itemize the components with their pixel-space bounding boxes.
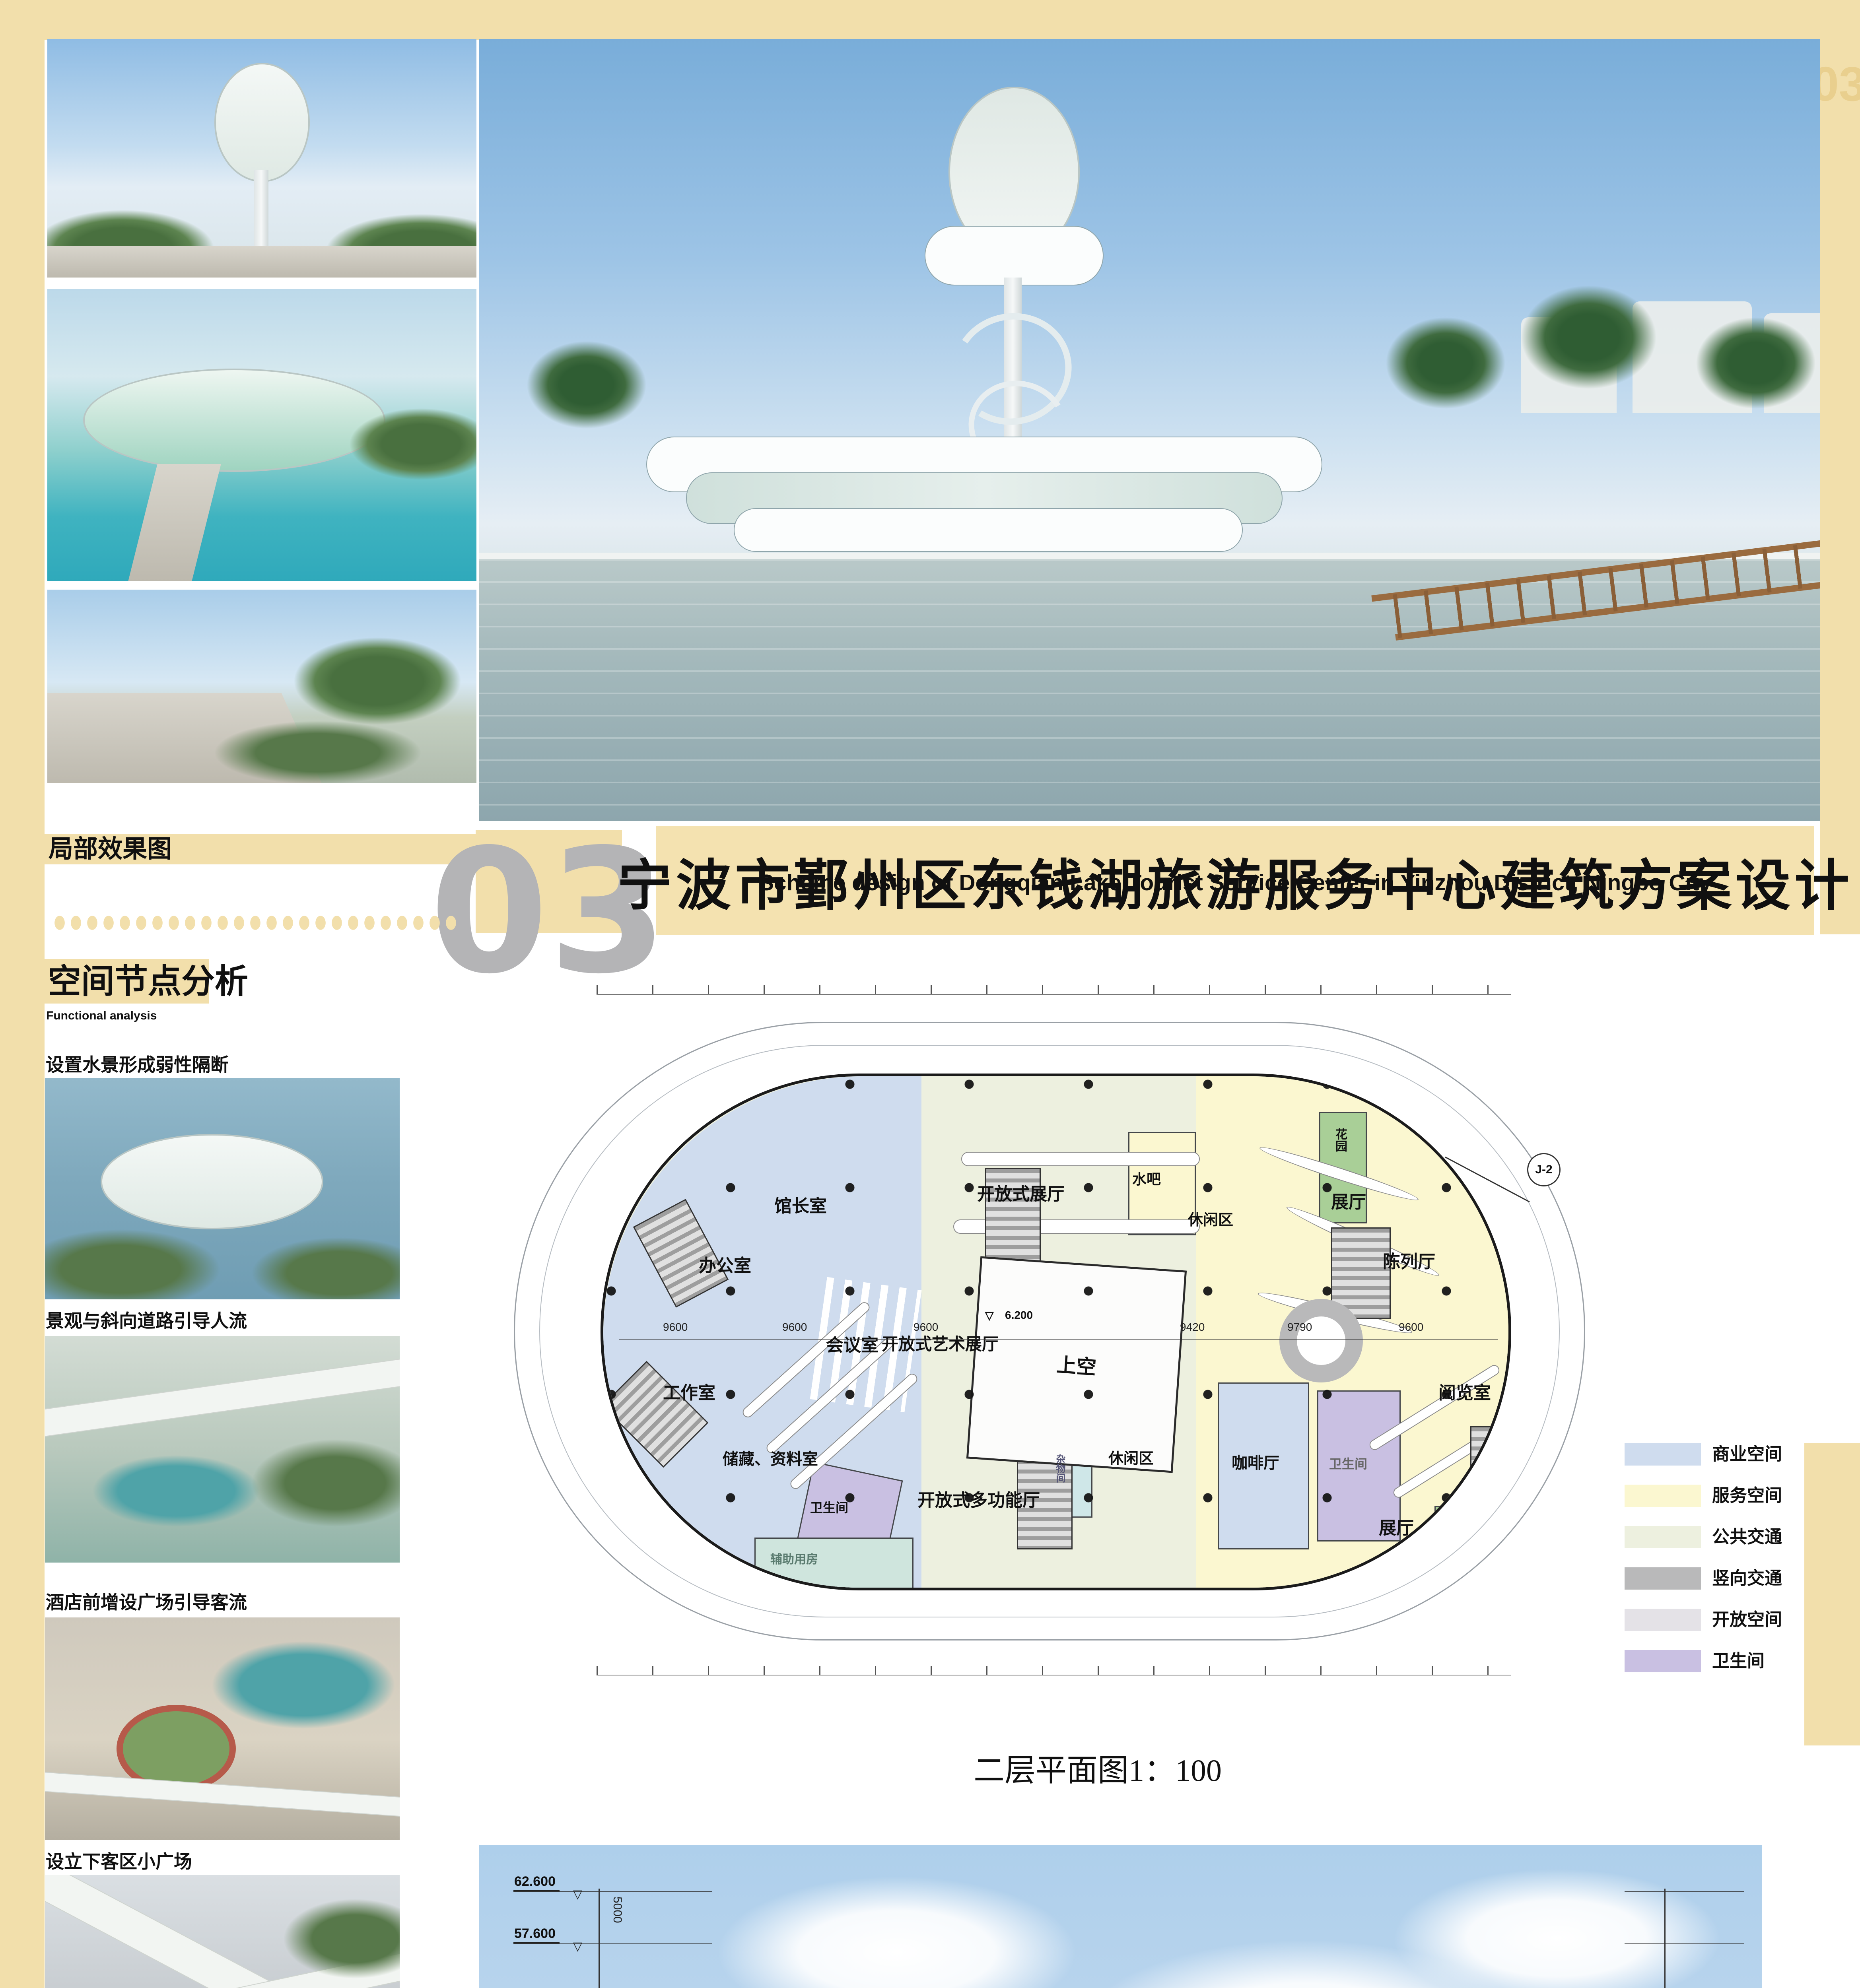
level-triangle-icon: ▽	[985, 1309, 994, 1322]
plan-level-mark: 6.200	[1005, 1309, 1033, 1322]
legend-row: 公共交通	[1625, 1526, 1831, 1548]
dotted-divider	[52, 914, 462, 931]
render-thumbnail-tower-closeup	[47, 39, 476, 278]
palm-tree-shape	[1521, 285, 1656, 389]
legend-label-commercial: 商业空间	[1712, 1443, 1782, 1466]
column-grid-dots	[603, 1076, 1511, 1590]
lens-building-shape	[83, 369, 385, 472]
tower-cap-shape	[214, 63, 310, 182]
palm-tree-shape	[1386, 317, 1505, 409]
legend-label-service: 服务空间	[1712, 1485, 1782, 1507]
legend-row: 开放空间	[1625, 1609, 1831, 1631]
room-label-exhibition-top: 展厅	[1331, 1188, 1366, 1213]
plan-dim-3: 9600	[913, 1321, 938, 1334]
level-row: 62.600▽	[513, 1874, 720, 1892]
pool-shape	[212, 1641, 395, 1729]
plan-dimension-line	[619, 1339, 1498, 1340]
legend-label-toilet: 卫生间	[1712, 1650, 1765, 1672]
main-render	[479, 39, 1820, 821]
room-label-open-exhibition: 开放式展厅	[977, 1180, 1065, 1205]
cloud-shape	[1394, 1869, 1720, 1988]
room-label-sundry: 杂物间	[1053, 1454, 1067, 1483]
foliage-shape	[252, 1439, 400, 1527]
plan-building: 上空 馆长室 办公室 会议室 工作室 储藏、资料室 卫生间 开放式展厅 水吧 休…	[601, 1074, 1511, 1590]
legend-label-open-space: 开放空间	[1712, 1609, 1782, 1631]
building-aerial-shape	[101, 1134, 323, 1229]
presentation-board: 03	[0, 0, 1860, 1988]
level-row: 57.600▽	[513, 1926, 720, 1944]
room-label-curator-office: 馆长室	[774, 1192, 827, 1217]
flower-bed-shape	[539, 518, 1712, 555]
room-label-leisure-top: 休闲区	[1188, 1208, 1233, 1229]
legend-row: 卫生间	[1625, 1650, 1831, 1672]
room-label-studio: 工作室	[663, 1378, 715, 1404]
road-shape	[45, 1875, 305, 1988]
room-label-cafe: 咖啡厅	[1232, 1450, 1279, 1473]
room-label-exhibition-bottom: 展厅	[1379, 1514, 1414, 1539]
left-beige-strip	[0, 0, 45, 1988]
analysis-image-4	[45, 1875, 400, 1988]
room-label-multifunction-hall: 开放式多功能厅	[917, 1486, 1040, 1511]
room-label-reading-room: 阅览室	[1438, 1378, 1491, 1404]
analysis-caption-4: 设立下客区小广场	[46, 1847, 192, 1873]
room-label-leisure-bottom: 休闲区	[1108, 1446, 1154, 1468]
legend-swatch-commercial	[1625, 1443, 1701, 1466]
plan-caption: 二层平面图1：100	[919, 1745, 1277, 1790]
plan-dim-4: 9420	[1180, 1321, 1205, 1334]
level-label: 57.600	[513, 1926, 560, 1943]
water-shape	[93, 1455, 260, 1527]
legend-label-public-circulation: 公共交通	[1712, 1526, 1782, 1548]
level-label: 62.600	[513, 1874, 560, 1891]
level-triangle-icon: ▽	[573, 1887, 582, 1901]
segment-dim: 5000	[610, 1897, 624, 1923]
analysis-subtitle: Functional analysis	[46, 1009, 157, 1023]
path-shape	[45, 1770, 400, 1818]
render-thumbnail-lake-building	[47, 289, 476, 581]
analysis-image-1	[45, 1078, 400, 1299]
plaza-shape	[47, 246, 476, 278]
legend-row: 竖向交通	[1625, 1567, 1831, 1590]
title-band: 宁波市鄞州区东钱湖旅游服务中心建筑方案设计 Scheme design of D…	[656, 826, 1814, 935]
level-triangle-icon: ▽	[573, 1939, 582, 1953]
legend-swatch-service	[1625, 1485, 1701, 1507]
page-subtitle: Scheme design of Dongqian Lake Tourist S…	[759, 870, 1712, 896]
dim-tick	[1625, 1943, 1744, 1944]
palm-tree-shape	[527, 341, 646, 429]
analysis-image-3	[45, 1617, 400, 1840]
room-label-display-hall: 陈列厅	[1383, 1247, 1435, 1273]
foliage-shape	[284, 1899, 400, 1978]
room-label-open-art-gallery: 开放式艺术展厅	[882, 1331, 999, 1355]
room-label-garden-top: 花园	[1331, 1128, 1349, 1152]
room-label-meeting-room: 会议室	[826, 1331, 878, 1356]
tower-pole-shape	[254, 170, 268, 246]
room-label-auxiliary: 辅助用房	[770, 1549, 818, 1567]
room-label-garden-bottom: 花园	[1438, 1524, 1461, 1540]
walkway-shape	[128, 464, 221, 581]
render-thumbnail-walkway	[47, 590, 476, 783]
legend-row: 服务空间	[1625, 1485, 1831, 1507]
plan-bottom-grid-ruler	[597, 1666, 1511, 1675]
room-label-toilet-left: 卫生间	[810, 1498, 848, 1516]
foliage-shape	[45, 1229, 220, 1299]
renders-section-label: 局部效果图	[49, 834, 172, 864]
dim-tick	[1625, 1891, 1744, 1892]
analysis-caption-3: 酒店前增设广场引导客流	[46, 1588, 247, 1614]
room-label-storage-archive: 储藏、资料室	[723, 1446, 818, 1469]
analysis-caption-2: 景观与斜向道路引导人流	[46, 1307, 247, 1333]
foliage-shape	[252, 1237, 400, 1299]
plan-dim-1: 9600	[663, 1321, 688, 1334]
room-label-office: 办公室	[699, 1251, 751, 1277]
palm-cluster-shape	[294, 637, 461, 725]
room-label-toilet-right: 卫生间	[1329, 1454, 1367, 1472]
dimension-line-right	[1664, 1889, 1666, 1988]
legend-swatch-public-circulation	[1625, 1526, 1701, 1548]
plan-dim-2: 9600	[782, 1321, 807, 1334]
foliage-shape	[350, 408, 476, 480]
legend-label-vertical-circulation: 竖向交通	[1712, 1567, 1782, 1590]
legend-swatch-toilet	[1625, 1650, 1701, 1672]
analysis-title: 空间节点分析	[48, 959, 248, 1004]
analysis-caption-1: 设置水景形成弱性隔断	[46, 1050, 229, 1077]
right-beige-strip-top	[1820, 0, 1860, 934]
grid-bubble: J-2	[1527, 1153, 1561, 1186]
legend-row: 商业空间	[1625, 1443, 1831, 1466]
room-label-water-bar: 水吧	[1132, 1168, 1161, 1188]
legend-swatch-open-space	[1625, 1609, 1701, 1631]
lawn-shape	[214, 721, 421, 783]
palm-tree-shape	[1696, 317, 1815, 409]
south-elevation-drawing: 62.600▽ 57.600▽ 27.600▽ 23.100▽ 12.400▽ …	[479, 1845, 1762, 1988]
bridge-shape	[45, 1355, 400, 1441]
tower-disc-shape	[925, 226, 1104, 285]
legend-swatch-vertical-circulation	[1625, 1567, 1701, 1590]
top-beige-band	[0, 0, 1860, 40]
plan-dim-5: 9790	[1287, 1321, 1312, 1334]
analysis-image-2	[45, 1336, 400, 1563]
cloud-shape	[718, 1877, 1076, 1988]
plan-top-grid-ruler	[597, 985, 1511, 995]
plan-dim-6: 9600	[1399, 1321, 1423, 1334]
